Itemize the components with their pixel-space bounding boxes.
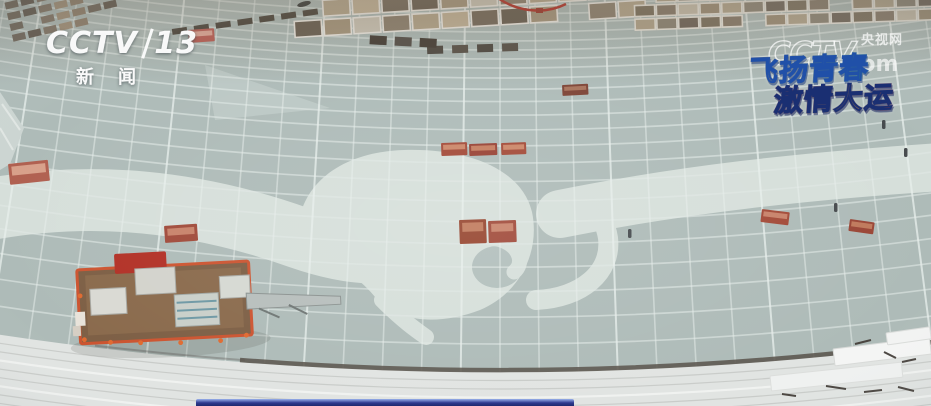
channel-bug-name: 新闻 <box>76 63 198 89</box>
channel-bug-network: CCTV <box>46 26 138 61</box>
channel-bug-slash <box>141 28 153 58</box>
slogan-line2: 激情大运 <box>773 82 895 115</box>
universiade-slogan: 飞扬青春 激情大运 <box>746 52 897 116</box>
caption-bar-top <box>196 399 574 406</box>
watermark-site-label: 央视网 <box>861 29 903 48</box>
channel-bug-number: 13 <box>154 26 198 61</box>
video-frame: CCTV 13 新闻 CCTV 央视网 com 飞扬青春 激情大运 <box>0 0 931 406</box>
channel-bug: CCTV 13 新闻 <box>46 26 198 89</box>
